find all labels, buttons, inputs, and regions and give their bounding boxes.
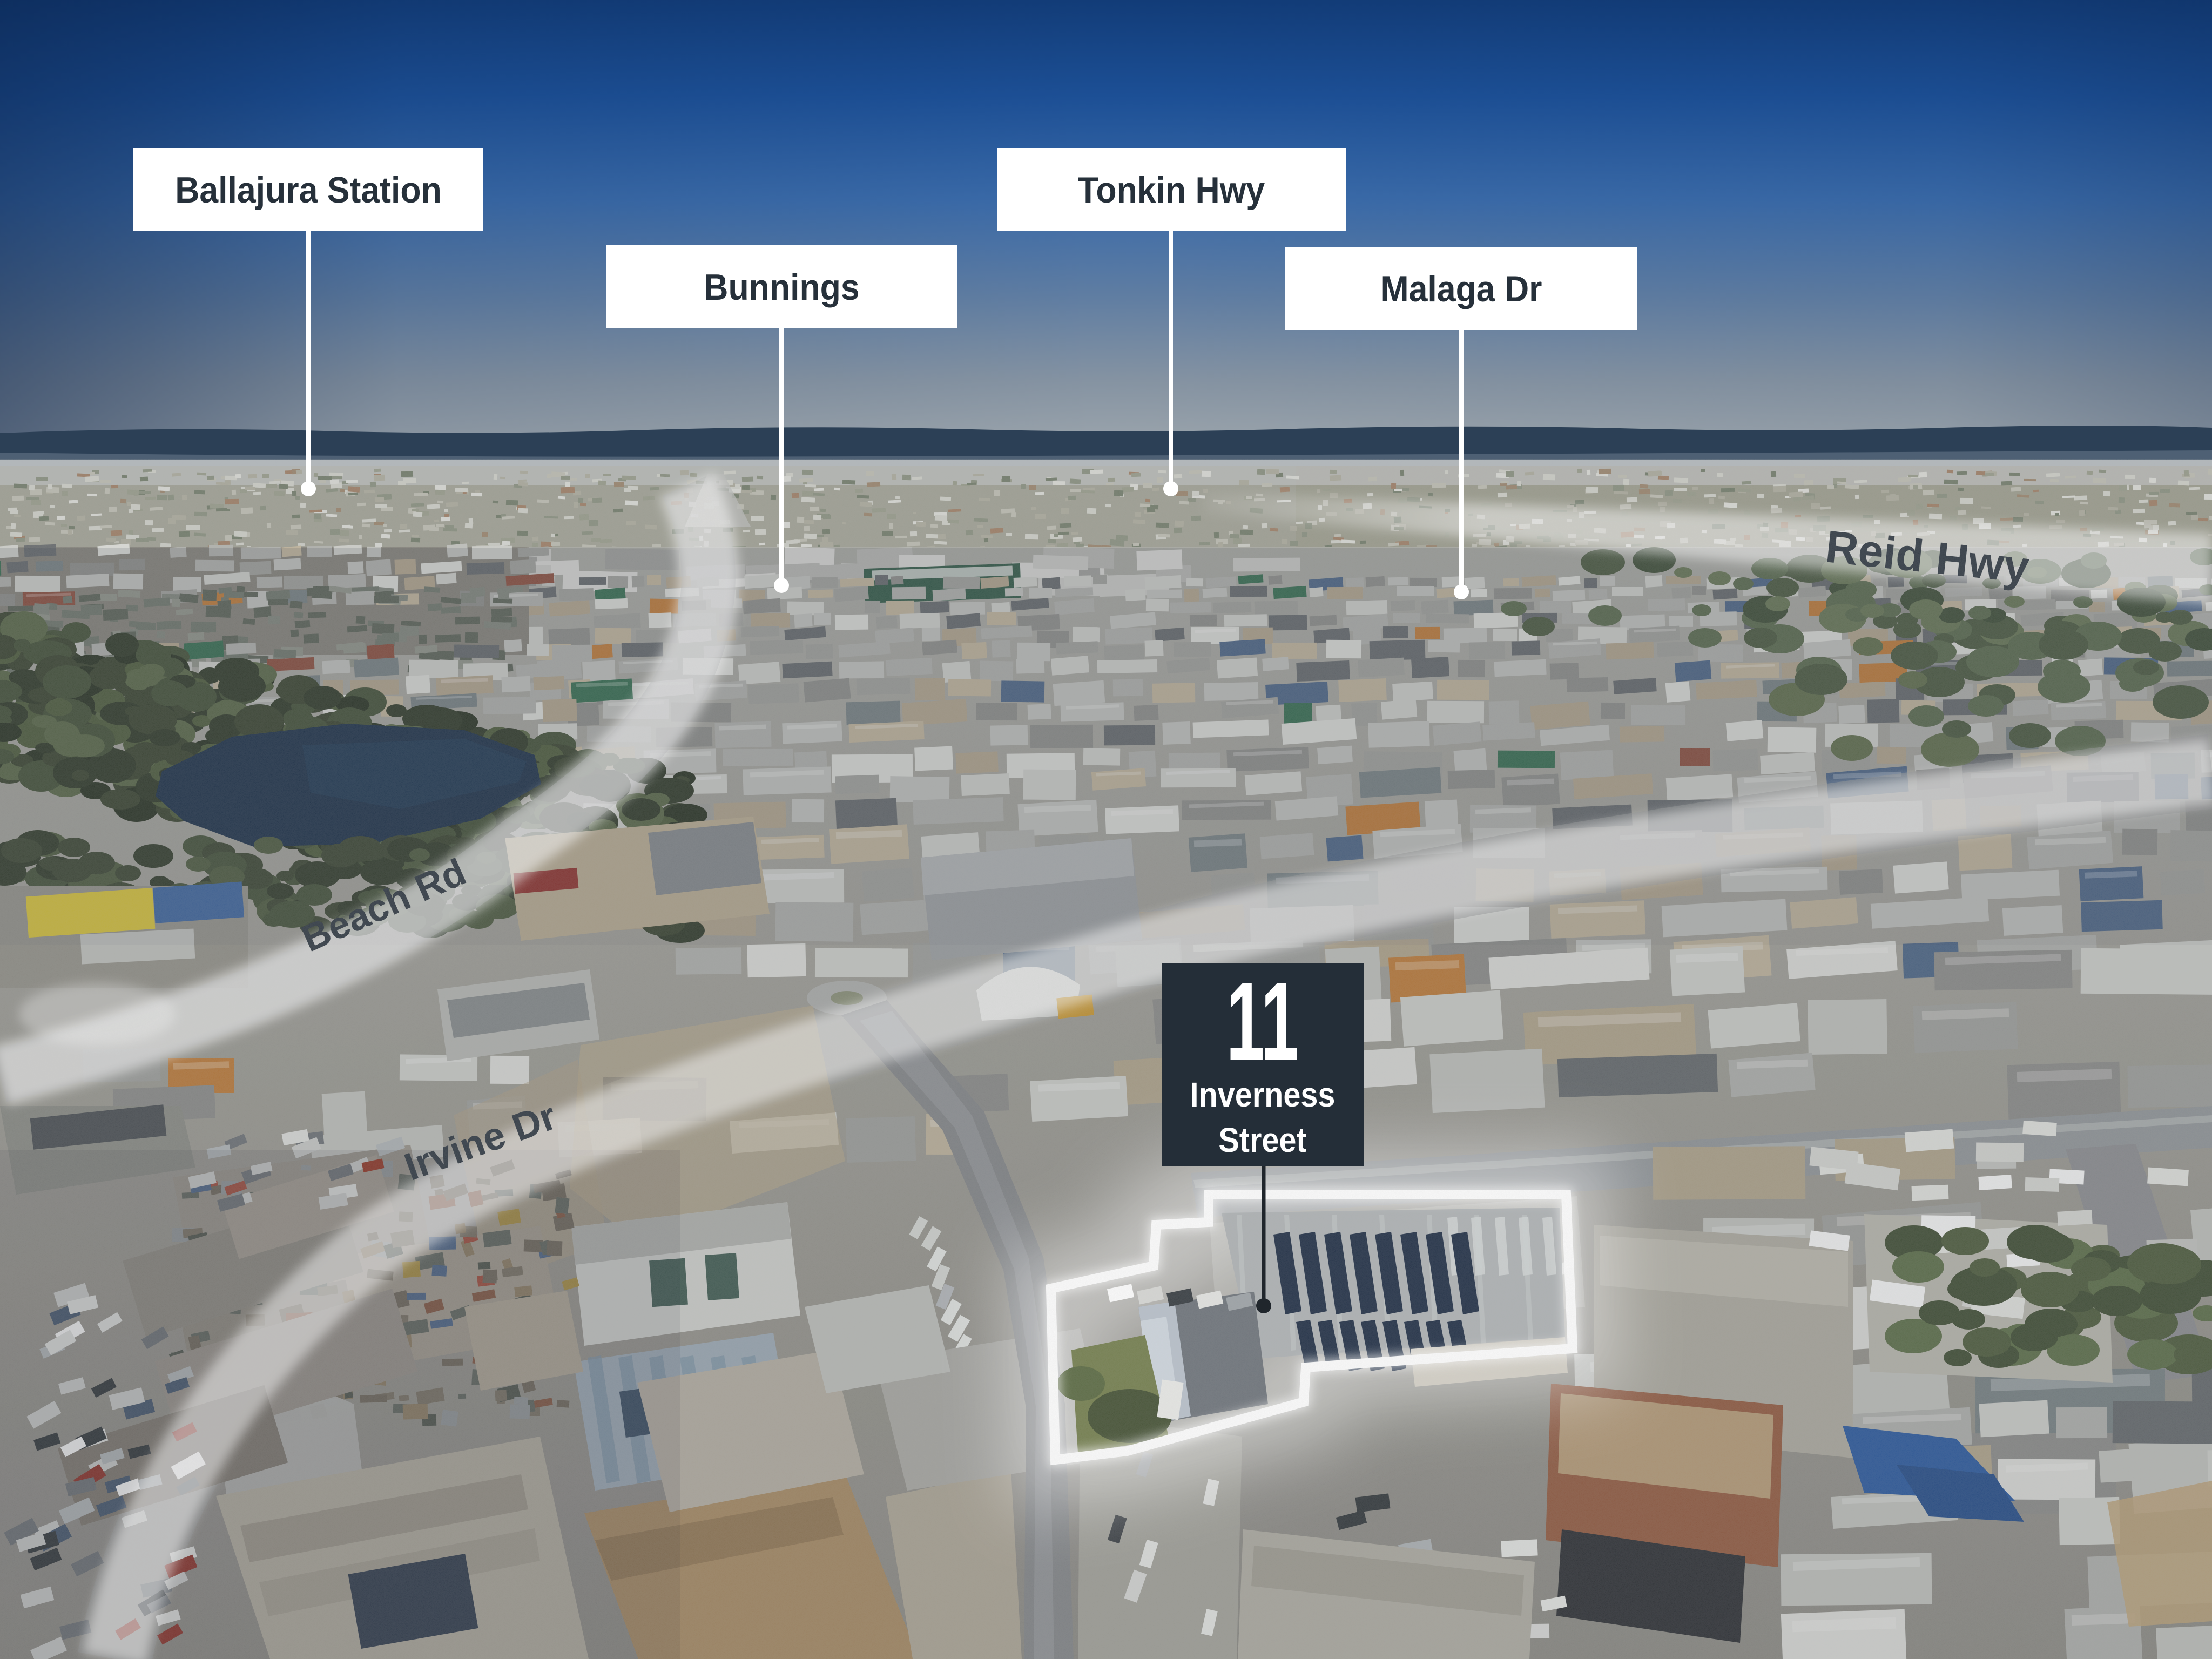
svg-text:Ballajura Station: Ballajura Station — [175, 170, 442, 211]
svg-text:Inverness: Inverness — [1190, 1075, 1336, 1114]
svg-text:11: 11 — [1226, 960, 1299, 1084]
svg-text:Malaga Dr: Malaga Dr — [1381, 268, 1542, 309]
svg-text:Tonkin Hwy: Tonkin Hwy — [1078, 170, 1265, 211]
svg-text:Street: Street — [1218, 1121, 1306, 1159]
svg-text:Bunnings: Bunnings — [704, 267, 859, 308]
